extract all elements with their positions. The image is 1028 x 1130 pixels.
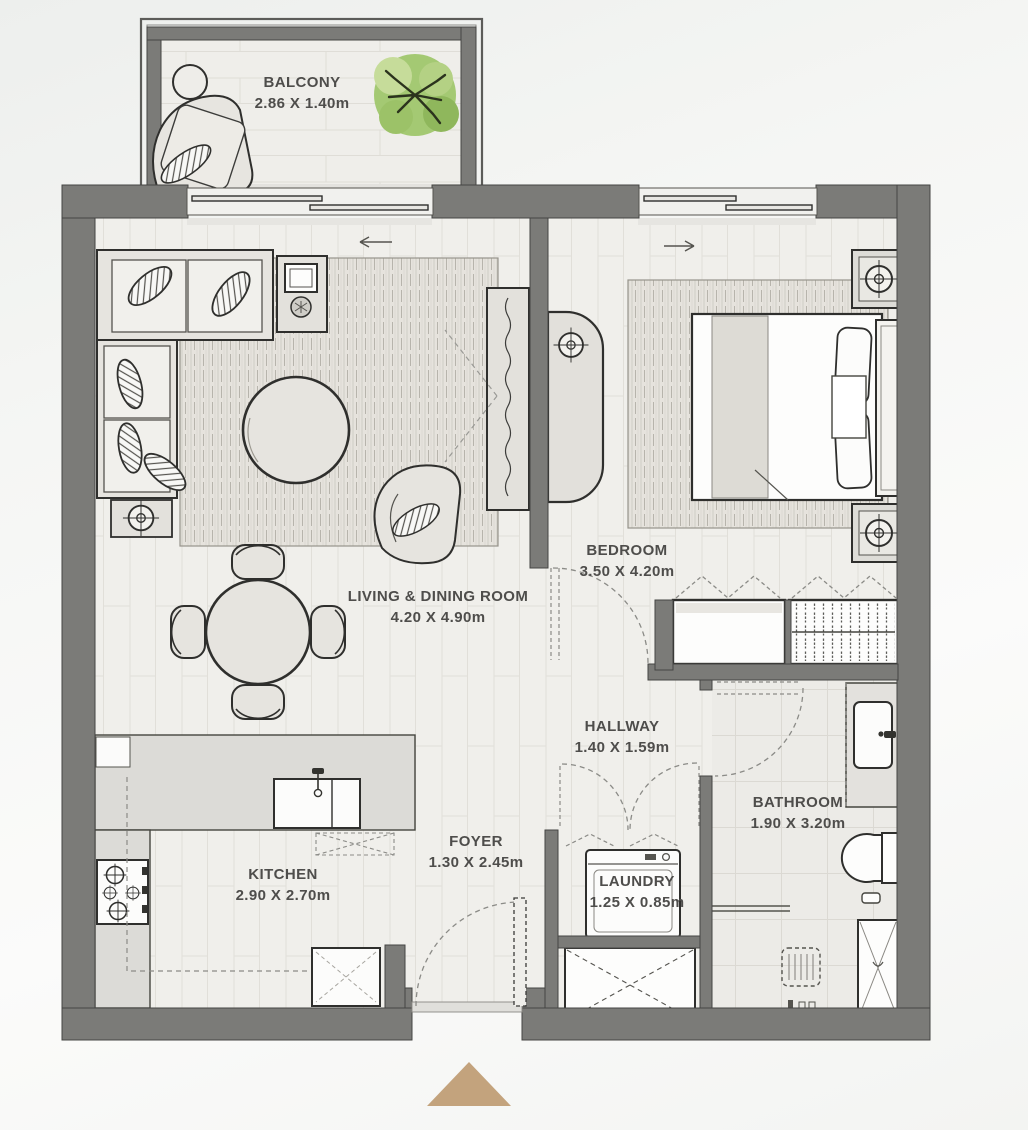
room-name: BEDROOM xyxy=(580,540,675,561)
side-table-tv xyxy=(277,256,327,332)
room-name: FOYER xyxy=(429,831,524,852)
toilet-paper-holder xyxy=(862,893,880,903)
room-label-living-dining: LIVING & DINING ROOM 4.20 X 4.90m xyxy=(348,586,529,628)
room-dimensions: 3.50 X 4.20m xyxy=(580,561,675,582)
dining-table xyxy=(206,580,310,684)
room-label-laundry: LAUNDRY 1.25 X 0.85m xyxy=(590,871,685,913)
bed-runner xyxy=(832,376,866,438)
room-dimensions: 1.90 X 3.20m xyxy=(751,813,846,834)
room-label-bathroom: BATHROOM 1.90 X 3.20m xyxy=(751,792,846,834)
wall-laundry-left xyxy=(545,830,558,1008)
room-dimensions: 4.20 X 4.90m xyxy=(348,607,529,628)
coffee-table xyxy=(243,377,349,483)
vanity-sink xyxy=(846,683,898,807)
tree-plant xyxy=(374,54,459,136)
room-name: BALCONY xyxy=(255,72,350,93)
closet-wardrobe xyxy=(789,600,898,664)
room-name: LAUNDRY xyxy=(590,871,685,892)
wall-bathroom-left xyxy=(700,680,712,690)
stove-cooktop xyxy=(97,860,148,924)
room-name: KITCHEN xyxy=(236,864,331,885)
room-name: HALLWAY xyxy=(575,716,670,737)
wall-left xyxy=(62,185,95,1040)
room-dimensions: 1.40 X 1.59m xyxy=(575,737,670,758)
bathroom-shaft xyxy=(858,920,898,1016)
room-dimensions: 1.25 X 0.85m xyxy=(590,892,685,913)
room-dimensions: 2.86 X 1.40m xyxy=(255,93,350,114)
room-dimensions: 1.30 X 2.45m xyxy=(429,852,524,873)
floor-lamp xyxy=(111,500,172,537)
room-label-kitchen: KITCHEN 2.90 X 2.70m xyxy=(236,864,331,906)
wall-bottom xyxy=(62,1008,412,1040)
wall-bottom xyxy=(522,1008,930,1040)
room-name: LIVING & DINING ROOM xyxy=(348,586,529,607)
wall-bathroom-left xyxy=(700,776,712,1008)
kitchen-counter-top xyxy=(95,735,415,830)
wall-living-bedroom xyxy=(530,218,548,568)
floorplan-svg xyxy=(0,0,1028,1130)
closet-plain xyxy=(673,600,785,664)
floorplan-canvas: BALCONY 2.86 X 1.40m LIVING & DINING ROO… xyxy=(0,0,1028,1130)
wall-kitchen-stub xyxy=(385,945,405,1008)
room-label-bedroom: BEDROOM 3.50 X 4.20m xyxy=(580,540,675,582)
bedroom-window xyxy=(639,188,817,215)
room-name: BATHROOM xyxy=(751,792,846,813)
room-dimensions: 2.90 X 2.70m xyxy=(236,885,331,906)
wall-top xyxy=(62,185,188,218)
wall-right xyxy=(897,185,930,1040)
wall-bedroom-bottom xyxy=(648,664,898,680)
room-label-balcony: BALCONY 2.86 X 1.40m xyxy=(255,72,350,114)
entrance-marker-triangle xyxy=(427,1062,511,1106)
balcony-sliding-door xyxy=(187,188,433,215)
balcony-table xyxy=(173,65,207,99)
room-label-hallway: HALLWAY 1.40 X 1.59m xyxy=(575,716,670,758)
dresser xyxy=(548,312,603,502)
bed xyxy=(692,314,904,500)
fridge xyxy=(312,948,380,1006)
room-label-foyer: FOYER 1.30 X 2.45m xyxy=(429,831,524,873)
wall-top xyxy=(432,185,639,218)
tv-console xyxy=(487,288,529,510)
